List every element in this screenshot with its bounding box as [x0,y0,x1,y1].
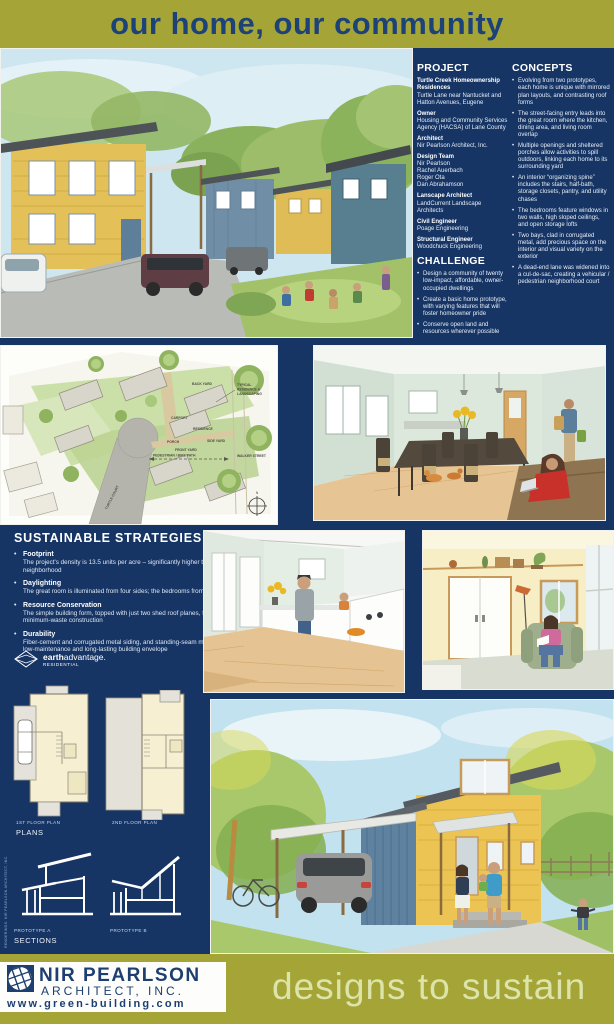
project-block: Turtle Creek Homeownership ResidencesTur… [417,78,509,106]
tagline: designs to sustain [272,966,586,1008]
project-block: Structural EngineerWoodchuck Engineering [417,237,509,251]
street-rendering-art [1,49,412,337]
project-block: Design TeamNir Pearlson Rachel Auerbach … [417,154,509,189]
project-block: Lanscape ArchitectLandCurrent Landscape … [417,193,509,214]
kitchen-rendering-art [204,531,404,692]
concepts-bullet: The bedrooms feature windows in two wall… [512,208,610,229]
dining-rendering [313,345,606,521]
concepts-heading: CONCEPTS [512,62,610,74]
concepts-bullet: The street-facing entry leads into the g… [512,111,610,139]
earth-advantage-icon [14,650,38,668]
project-block: OwnerHousing and Community Services Agen… [417,111,509,132]
first-floor-plan [12,684,96,825]
project-block: Civil EngineerPoage Engineering [417,219,509,233]
concepts-bullet: Two bays, clad in corrugated metal, add … [512,233,610,261]
exterior-rendering-art [211,700,613,953]
label-typical-2: RESIDENCE & [237,388,261,392]
earth-advantage-logo: earthadvantage. RESIDENTIAL [14,650,106,668]
challenge-bullet: Create a basic home prototype, with vary… [417,297,509,318]
kitchen-child [339,593,349,611]
header-band: our home, our community [0,0,614,48]
site-plan: BACK YARD TYPICAL RESIDENCE & LANDSCAPIN… [0,345,278,525]
section-prototype-a [20,850,95,925]
second-floor-plan [104,690,188,825]
bedroom-rendering-art [423,531,613,689]
concepts-bullet: An interior “organizing spine” includes … [512,175,610,203]
challenge-bullet: Conserve open land and resources whereve… [417,322,509,336]
section-b-art [108,850,183,920]
website-url: www.green-building.com [7,998,186,1010]
page-title: our home, our community [110,6,504,42]
kitchen-rendering [203,530,405,693]
concepts-bullet: Multiple openings and sheltered porches … [512,143,610,171]
poster: our home, our community [0,0,614,1024]
bedroom-rendering [422,530,614,690]
project-block: ArchitectNir Pearlson Architect, Inc. [417,136,509,150]
brand-bold: earth [43,652,64,662]
label-side-yard: SIDE YARD [207,439,226,443]
sections-label: SECTIONS [14,936,57,945]
firm-suffix: ARCHITECT, INC. [41,984,184,998]
vertical-credit-text: RENDERINGS: NIR PEARLSON ARCHITECT, INC. [4,855,8,948]
label-front-yard: FRONT YARD [175,448,197,452]
second-floor-plan-art [104,690,188,820]
challenge-heading: CHALLENGE [417,255,509,267]
exterior-rendering [210,699,614,954]
label-bike-path: PEDESTRIAN / BIKE PATH [153,454,196,458]
firm-logo-icon [7,965,34,992]
site-plan-art: BACK YARD TYPICAL RESIDENCE & LANDSCAPIN… [1,346,277,524]
prototype-b-label: PROTOTYPE B [110,928,147,933]
label-typical-1: TYPICAL [237,383,252,387]
label-typical-3: LANDSCAPING [237,392,262,396]
second-floor-plan-label: 2ND FLOOR PLAN [112,820,157,825]
project-heading: PROJECT [417,62,509,74]
label-residence: RESIDENCE [193,427,214,431]
challenge-bullet: Design a community of twenty low-impact,… [417,271,509,292]
first-floor-plan-label: 1ST FLOOR PLAN [16,820,60,825]
prototype-a-label: PROTOTYPE A [14,928,51,933]
dining-rendering-art [314,346,605,520]
street-rendering [0,48,413,338]
project-column: PROJECT Turtle Creek Homeownership Resid… [417,62,509,340]
brand-rest: advantage. [64,652,106,662]
brand-sub: RESIDENTIAL [43,662,106,667]
section-prototype-b [108,850,183,925]
first-floor-plan-art [12,684,96,820]
plans-label: PLANS [16,828,44,837]
concepts-bullet: A dead-end lane was widened into a cul-d… [512,265,610,286]
firm-logo [7,965,34,997]
section-a-art [20,850,95,920]
concepts-column: CONCEPTS Evolving from two prototypes, e… [512,62,610,290]
concepts-bullet: Evolving from two prototypes, each home … [512,78,610,106]
label-walker-street: WALKER STREET [237,454,267,458]
label-carport: CARPORT [171,416,189,420]
label-back-yard: BACK YARD [192,382,213,386]
label-porch: PORCH [167,440,180,444]
